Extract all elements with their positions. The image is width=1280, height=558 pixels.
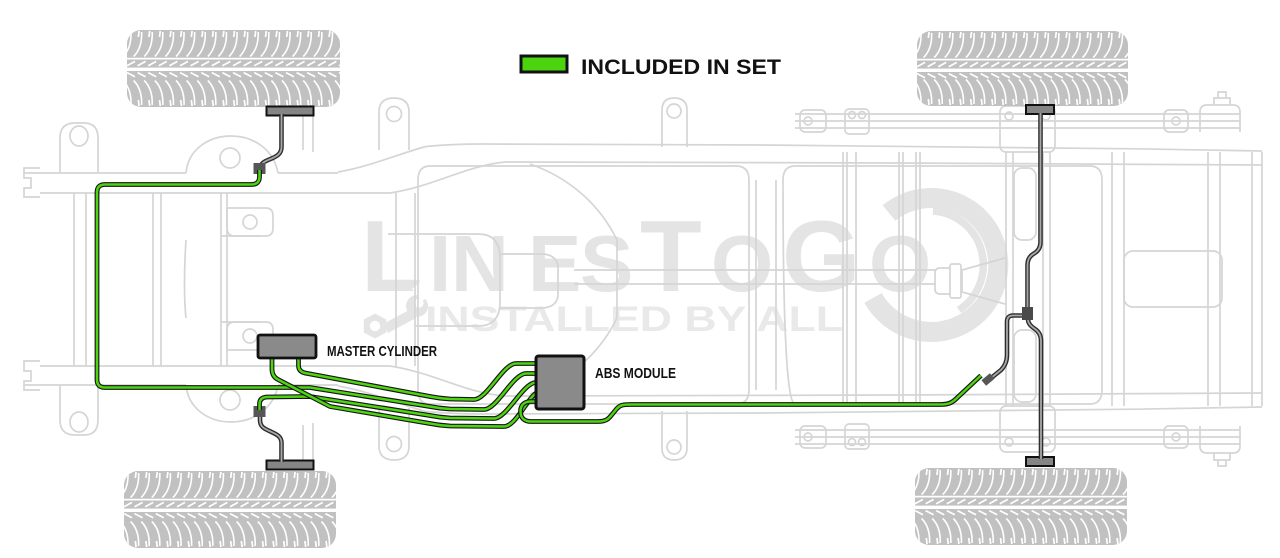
svg-text:ABS MODULE: ABS MODULE: [595, 366, 676, 382]
svg-text:INSTALLED BY ALL: INSTALLED BY ALL: [425, 300, 843, 339]
svg-text:MASTER CYLINDER: MASTER CYLINDER: [327, 344, 437, 360]
svg-text:INCLUDED IN SET: INCLUDED IN SET: [581, 56, 781, 79]
svg-text:LINESTOGO: LINESTOGO: [361, 201, 931, 313]
